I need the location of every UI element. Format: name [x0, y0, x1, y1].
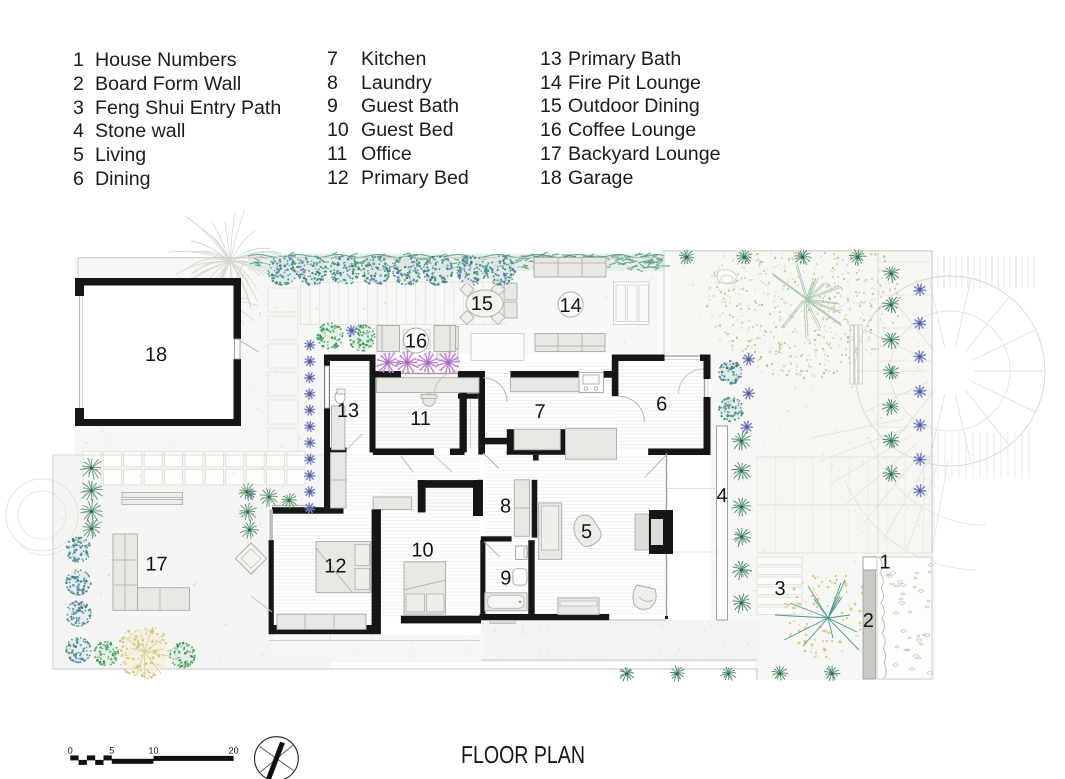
svg-text:7: 7 — [534, 401, 545, 423]
svg-text:1: 1 — [879, 552, 890, 574]
svg-text:5: 5 — [109, 746, 114, 756]
svg-text:15: 15 — [471, 293, 493, 315]
svg-text:9: 9 — [500, 568, 511, 590]
svg-text:10: 10 — [148, 746, 158, 756]
svg-text:10: 10 — [411, 540, 433, 562]
svg-text:4: 4 — [716, 485, 727, 507]
svg-text:0: 0 — [68, 746, 73, 756]
svg-text:17: 17 — [145, 554, 167, 576]
svg-text:16: 16 — [405, 331, 427, 353]
svg-text:12: 12 — [324, 556, 346, 578]
svg-text:20: 20 — [229, 746, 239, 756]
svg-text:5: 5 — [581, 521, 592, 543]
svg-text:8: 8 — [500, 496, 511, 518]
svg-text:11: 11 — [410, 408, 431, 430]
svg-text:18: 18 — [145, 344, 167, 366]
svg-text:2: 2 — [863, 610, 874, 632]
svg-text:13: 13 — [337, 400, 359, 422]
svg-text:3: 3 — [774, 578, 785, 600]
svg-text:6: 6 — [656, 394, 667, 416]
svg-text:14: 14 — [559, 295, 581, 317]
svg-text:FLOOR PLAN: FLOOR PLAN — [461, 742, 585, 769]
